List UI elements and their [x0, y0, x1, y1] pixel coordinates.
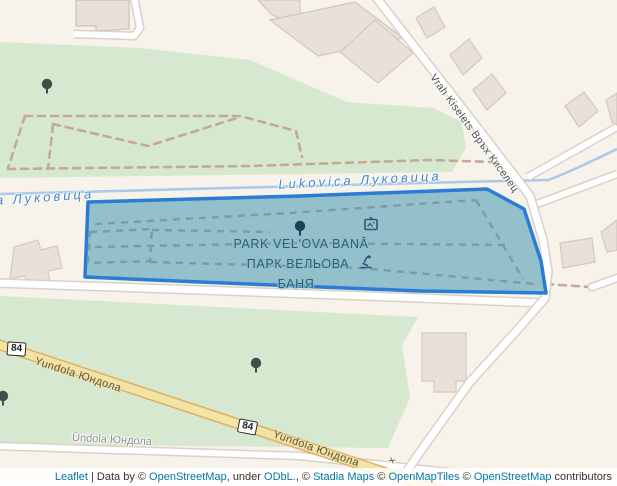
green-area-lower [0, 296, 418, 448]
park-polygon-highlight[interactable] [85, 189, 546, 293]
attribution-link[interactable]: Leaflet [55, 471, 88, 483]
attribution-link[interactable]: OpenStreetMap [149, 471, 227, 483]
attribution-segment: | Data by © [88, 471, 149, 483]
attribution-link[interactable]: ODbL. [264, 471, 296, 483]
attribution-link[interactable]: OpenMapTiles [388, 471, 459, 483]
map-canvas[interactable]: PARK VELʹOVA BANÂ ПАРК ВЕЛЬОВА БАНЯ а Лу… [0, 0, 617, 486]
attribution-segment: © [374, 471, 388, 483]
attribution-segment: , © [296, 471, 313, 483]
attribution-segment: , under [227, 471, 264, 483]
attribution-link[interactable]: Stadia Maps [313, 471, 374, 483]
attribution-text: Leaflet | Data by © OpenStreetMap, under… [55, 471, 612, 483]
attribution-segment: © [460, 471, 474, 483]
attribution-segment: contributors [551, 471, 612, 483]
map-tile-layer [0, 0, 617, 486]
attribution-link[interactable]: OpenStreetMap [474, 471, 552, 483]
attribution-bar: Leaflet | Data by © OpenStreetMap, under… [0, 468, 617, 486]
